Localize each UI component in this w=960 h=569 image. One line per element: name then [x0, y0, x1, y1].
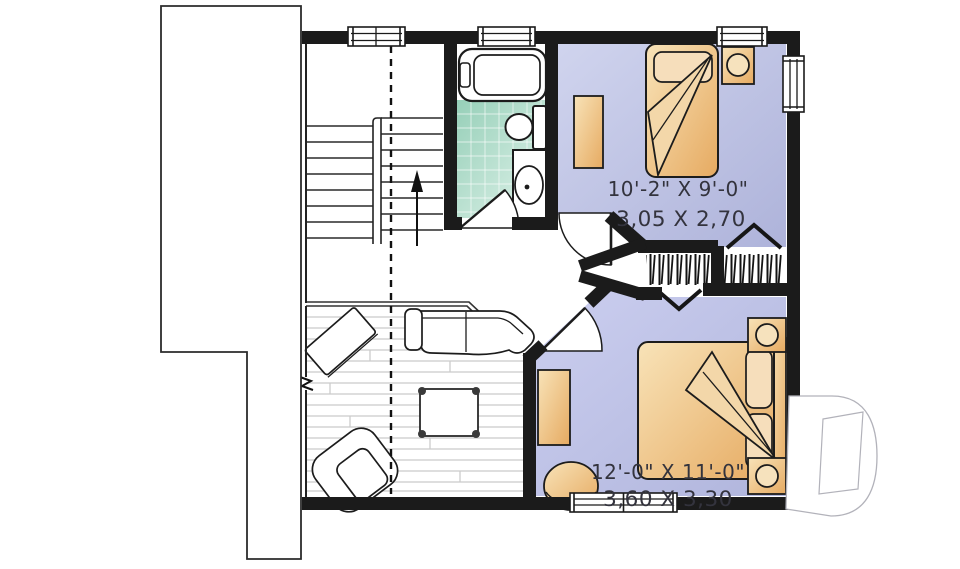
pillow [746, 350, 772, 408]
floor-plan-drawing: 10'-2" X 9'-0" 3,05 X 2,70 12'-0" X 11'-… [0, 0, 960, 569]
window-right [783, 56, 804, 112]
window-top-2 [478, 27, 535, 46]
coffee-table [418, 387, 480, 438]
nightstand-bedroom-2-top [748, 318, 786, 352]
dresser-bedroom-1 [574, 96, 603, 168]
nightstand-bedroom-1 [722, 47, 754, 84]
closet-left-hanger-marks [646, 250, 710, 286]
drummond-d-logo-icon [786, 396, 877, 516]
bedroom-2-dimensions-metric: 3,60 X 3,30 [603, 487, 733, 512]
dresser-bedroom-2 [538, 370, 570, 445]
sofa [405, 309, 534, 355]
bed-single [646, 44, 718, 177]
vanity-sink [513, 150, 546, 218]
closet-right-hanger-marks [723, 249, 783, 285]
table-lamp [756, 465, 778, 487]
open-to-below-area [161, 6, 301, 559]
bedroom-2-dimensions-imperial: 12'-0" X 11'-0" [591, 460, 745, 484]
staircase [307, 118, 443, 238]
table-lamp [727, 54, 749, 76]
nightstand-bedroom-2-bottom [748, 458, 786, 494]
floor-plan-canvas: 10'-2" X 9'-0" 3,05 X 2,70 12'-0" X 11'-… [0, 0, 960, 569]
bedroom-1-dimensions-metric: 3,05 X 2,70 [616, 207, 746, 232]
stair-divider [373, 118, 381, 244]
bathtub [459, 49, 546, 101]
table-lamp [756, 324, 778, 346]
window-top-3 [717, 27, 767, 46]
bedroom-1-dimensions-imperial: 10'-2" X 9'-0" [608, 177, 749, 201]
window-top-1 [348, 27, 405, 46]
